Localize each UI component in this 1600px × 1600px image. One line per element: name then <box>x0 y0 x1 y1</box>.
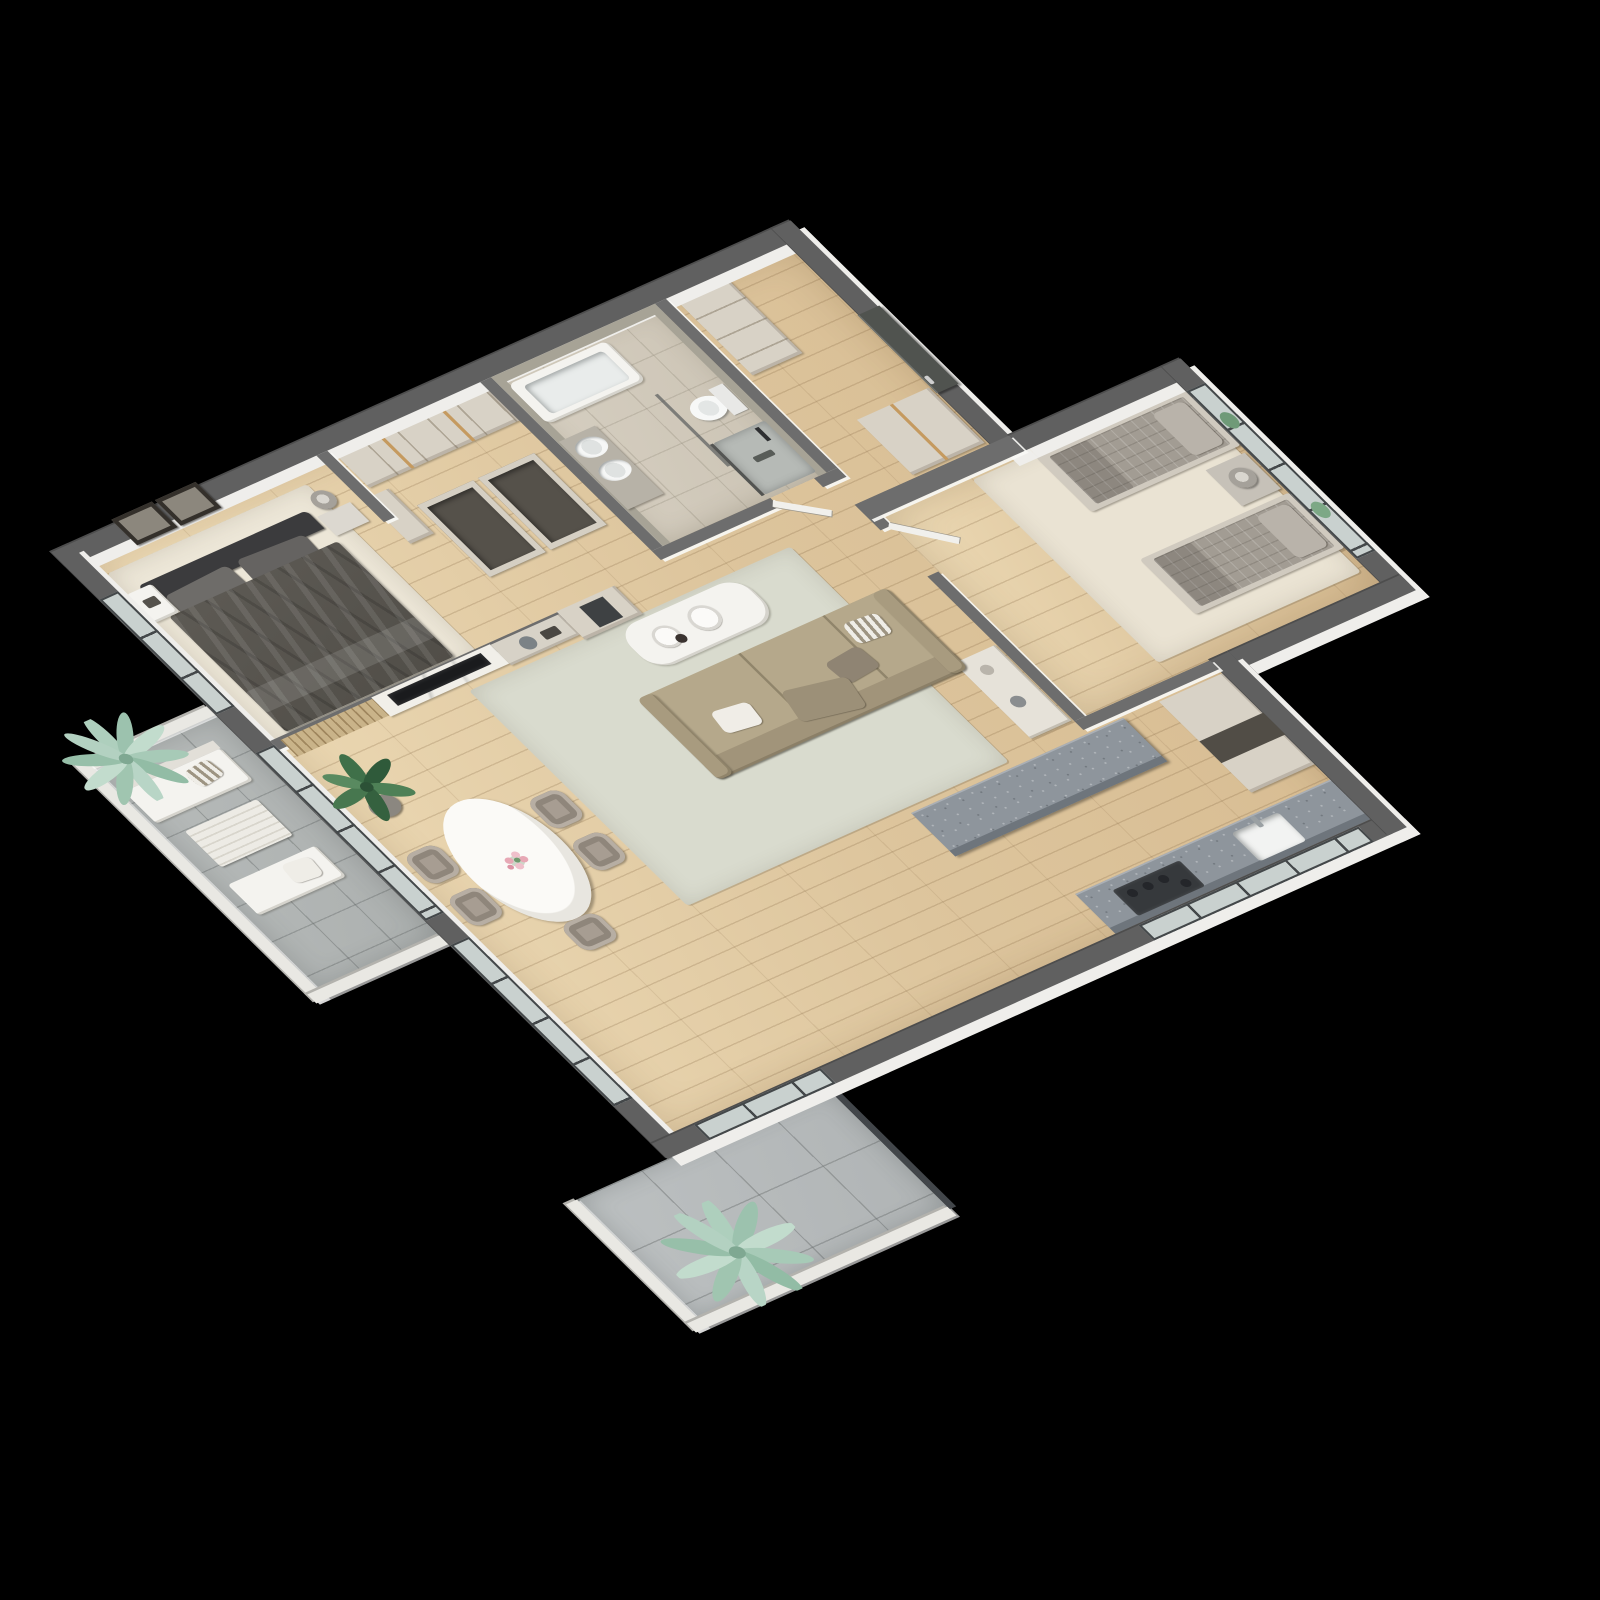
apartment-floor-plan <box>0 0 1600 1600</box>
isometric-plan-container <box>0 134 1600 1365</box>
